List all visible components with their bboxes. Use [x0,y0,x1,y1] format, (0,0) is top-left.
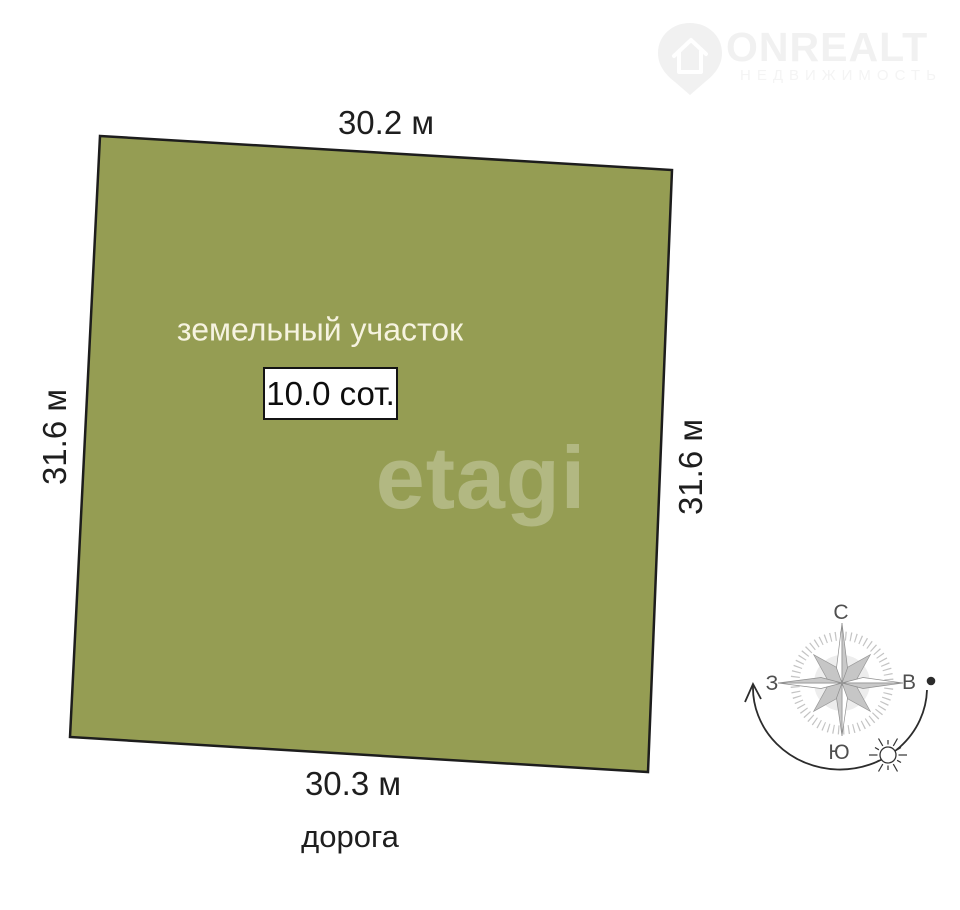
sun-path-start-dot [927,677,936,686]
dimension-left-label: 31.6 м [36,389,74,485]
sun-icon [869,739,907,772]
area-badge-value: 10.0 сот. [266,375,395,413]
plot-title-label: земельный участок [177,312,463,349]
road-label: дорога [301,819,399,855]
dimension-top-label: 30.2 м [338,104,434,142]
etagi-watermark: etagi [376,427,586,529]
site-plan-canvas: ONREALT НЕДВИЖИМОСТЬ 30.2 м 31.6 м 31.6 … [0,0,960,910]
compass-rose: С Ю З В [735,588,947,803]
area-badge: 10.0 сот. [263,367,398,420]
dimension-right-label: 31.6 м [672,419,710,515]
compass-south-label: Ю [828,741,849,764]
compass-main-points [778,623,903,736]
compass-east-label: В [902,671,916,694]
compass-north-label: С [833,601,848,624]
dimension-bottom-label: 30.3 м [305,765,401,803]
compass-west-label: З [766,672,779,695]
